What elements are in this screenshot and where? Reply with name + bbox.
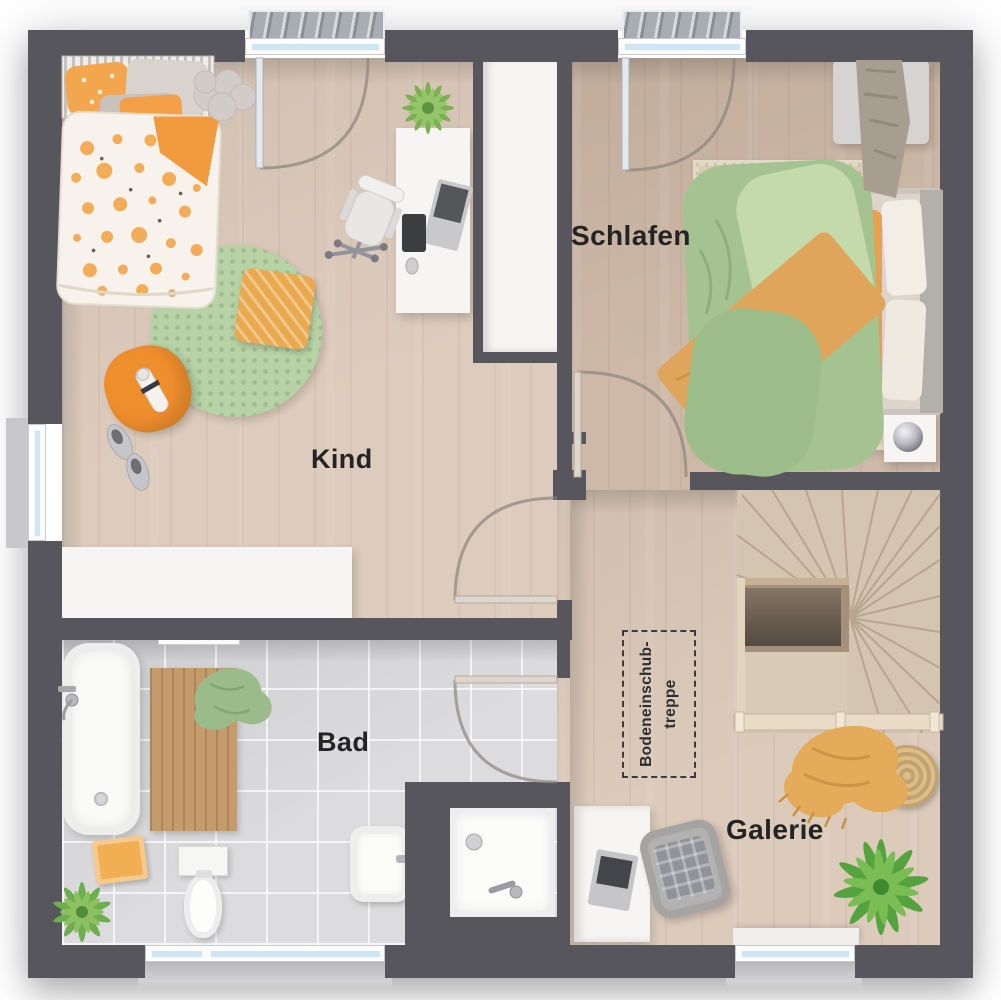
window-galerie-sill: [733, 928, 859, 945]
bathroom-sink: [350, 826, 410, 902]
wall-top-right: [746, 30, 973, 62]
wall-left-lower: [28, 541, 62, 978]
room-label-galerie: Galerie: [726, 814, 824, 846]
window-schlafen: [618, 38, 746, 55]
schlafen-bench: [833, 60, 929, 144]
kind-left-shadow: [62, 58, 84, 618]
wall-bottom-left: [28, 945, 145, 978]
galerie-desk: [574, 806, 650, 942]
wall-bottom-mid: [385, 945, 735, 978]
floor-plan: Kind Schlafen Bad Galerie Bodeneinschub-…: [0, 0, 1001, 1000]
room-label-schlafen: Schlafen: [571, 220, 691, 252]
wardrobe-interior: [483, 58, 557, 352]
window-bad-exterior: [138, 962, 392, 988]
window-kind-glass: [251, 43, 380, 51]
shower-wall-top: [450, 782, 557, 808]
window-bad: [145, 945, 385, 962]
window-left-exterior: [6, 418, 28, 548]
kind-sideboard: [62, 547, 352, 618]
shower-wall-left: [405, 782, 450, 945]
toilet-bowl: [184, 874, 222, 938]
window-left-glass: [34, 430, 41, 537]
window-kind-grate: [248, 10, 385, 40]
bathtub: [63, 643, 140, 835]
room-label-kind: Kind: [311, 444, 373, 475]
shower-wall-bottom: [450, 917, 557, 945]
window-schlafen-grate: [622, 10, 742, 40]
window-bad-glass-2: [210, 950, 381, 958]
window-galerie-exterior: [726, 962, 862, 988]
toilet-tank: [178, 846, 228, 876]
schlafen-bottom-wall: [690, 472, 940, 490]
wardrobe-wall-bottom: [473, 352, 570, 363]
window-galerie-glass: [741, 950, 850, 958]
window-bad-glass: [151, 950, 203, 958]
kind-rug-pillow: [233, 267, 317, 351]
bad-wood-mat: [150, 668, 237, 831]
wardrobe-wall-left: [473, 58, 483, 363]
window-kind: [245, 38, 385, 55]
window-left: [28, 424, 46, 541]
attic-stairs-line2: treppe: [662, 679, 679, 728]
wall-bottom-right: [855, 945, 973, 978]
attic-stairs-line1: Bodeneinschub-: [638, 641, 655, 767]
room-label-bad: Bad: [317, 727, 369, 758]
orange-towels: [92, 835, 149, 885]
kind-desk: [396, 128, 470, 313]
bad-hall-wall-upper: [557, 640, 570, 678]
nightstand: [884, 410, 936, 462]
door-jamb-block: [553, 470, 586, 500]
schlafen-rug: [693, 160, 889, 450]
wall-top-mid: [385, 30, 618, 62]
bathtub-drain: [94, 792, 108, 806]
bad-hall-wall-lower: [557, 782, 570, 945]
galerie-top-shadow: [572, 490, 940, 514]
wall-left-upper: [28, 30, 62, 424]
window-galerie: [735, 945, 855, 962]
attic-stairs-annotation: Bodeneinschub- treppe: [622, 630, 696, 778]
hall-wall-jamb-tick: [570, 432, 586, 444]
bad-top-wall: [62, 618, 570, 640]
attic-stairs-label: Bodeneinschub- treppe: [635, 641, 683, 767]
window-schlafen-glass: [624, 43, 741, 51]
wall-right: [940, 30, 973, 978]
shower-tray: [450, 808, 555, 917]
woven-basket: [876, 745, 938, 807]
